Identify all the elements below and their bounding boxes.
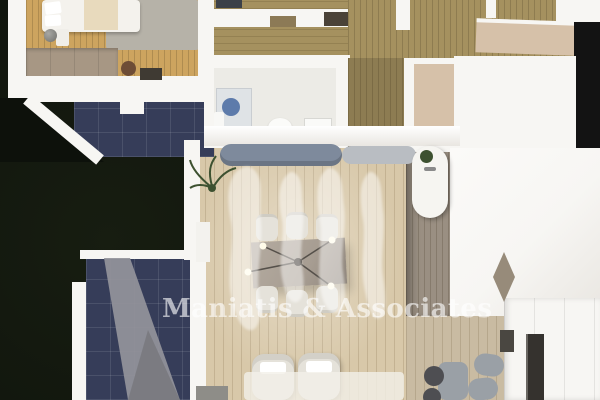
watermark-figure [317,168,345,313]
floorplan-render: Maniatis & Associates [0,0,600,400]
watermark-logo [0,0,600,400]
watermark-figure [279,172,303,302]
watermark-text: Maniatis & Associates [162,294,492,324]
